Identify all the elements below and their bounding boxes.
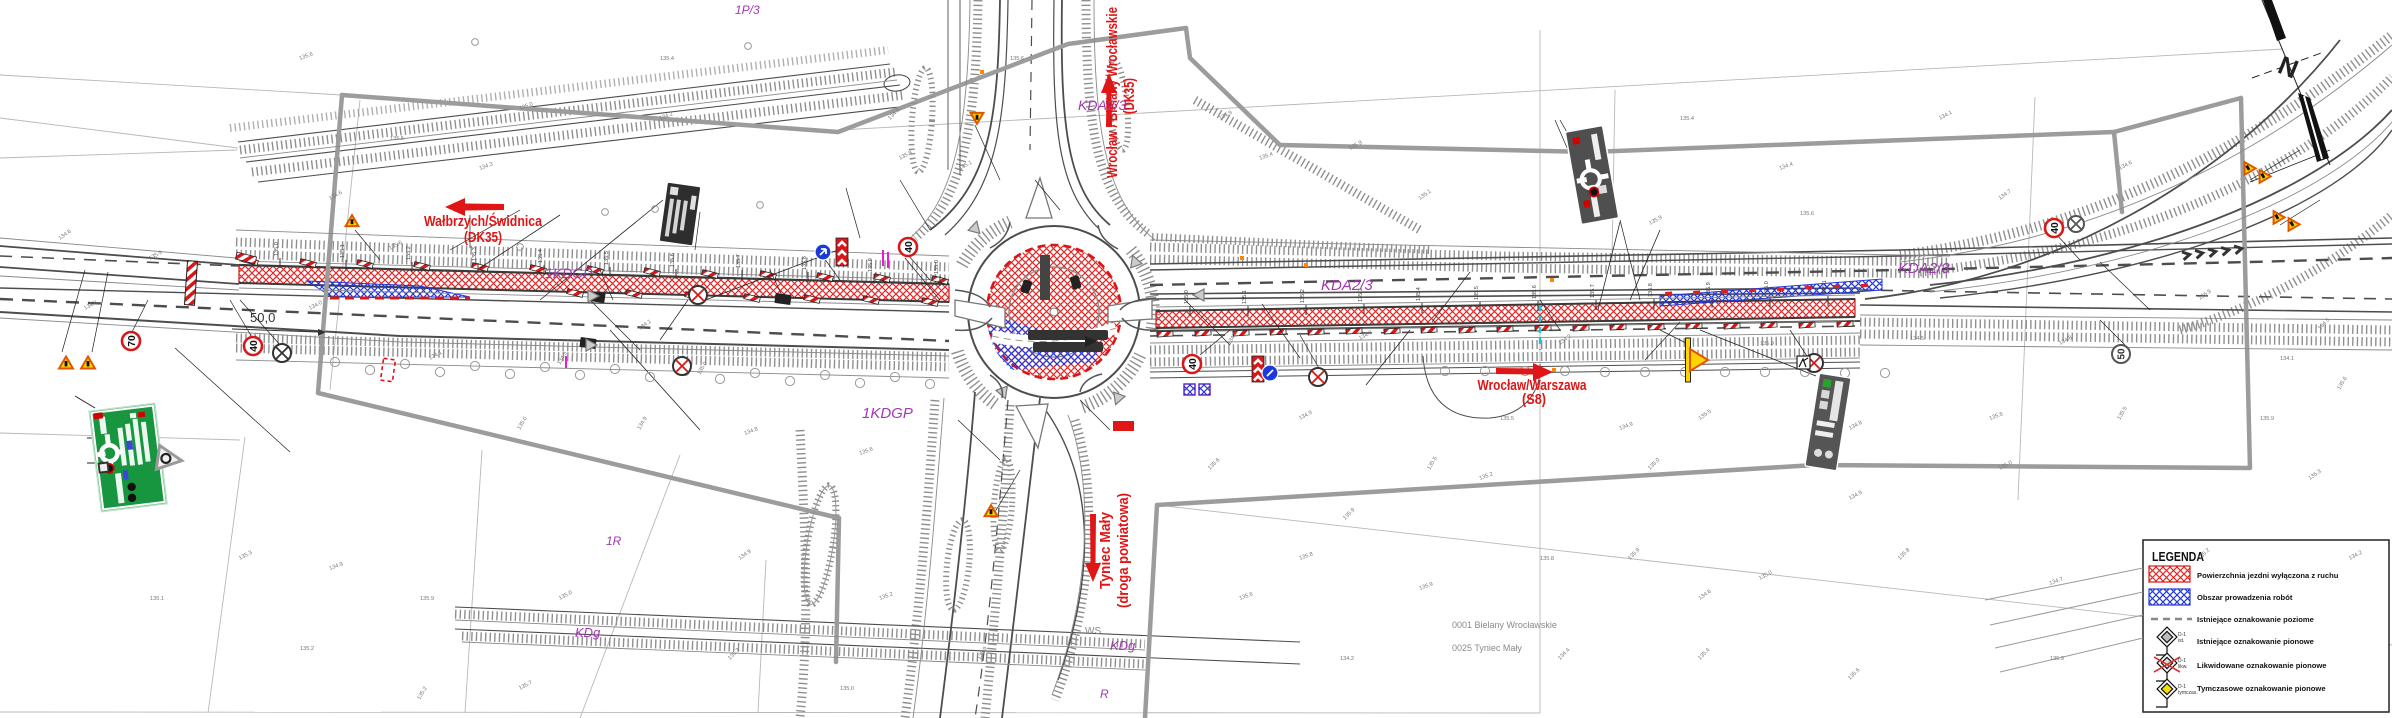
svg-text:KDA2/3: KDA2/3 (1321, 277, 1373, 294)
svg-text:tymczas.: tymczas. (2178, 690, 2198, 696)
svg-text:135.9: 135.9 (420, 596, 434, 602)
svg-text:134.1: 134.1 (2280, 356, 2294, 362)
svg-text:(DK35): (DK35) (464, 229, 502, 246)
svg-text:135.9: 135.9 (1706, 282, 1712, 296)
svg-text:135.9: 135.9 (2260, 416, 2274, 422)
svg-text:1KDGP: 1KDGP (545, 265, 593, 281)
svg-text:135.1: 135.1 (1242, 290, 1248, 304)
svg-text:KDg: KDg (1110, 638, 1136, 653)
svg-text:Tyniec Mały: Tyniec Mały (1097, 511, 1114, 589)
svg-text:135.9: 135.9 (2050, 656, 2064, 662)
svg-text:135.2: 135.2 (1300, 289, 1306, 303)
svg-text:Powierzchnia jezdni wyłączona: Powierzchnia jezdni wyłączona z ruchu (2197, 571, 2339, 580)
svg-text:135.8: 135.8 (802, 256, 808, 270)
svg-text:135.0: 135.0 (274, 242, 280, 256)
svg-text:Likwidowane oznakowanie pionow: Likwidowane oznakowanie pionowe (2197, 661, 2327, 670)
svg-text:135.6: 135.6 (1800, 211, 1814, 217)
svg-text:135.4: 135.4 (660, 56, 674, 62)
svg-text:likw.: likw. (2178, 664, 2187, 670)
svg-text:1KDGP: 1KDGP (862, 405, 913, 422)
svg-text:70: 70 (127, 335, 138, 347)
svg-text:135.5: 135.5 (390, 136, 404, 142)
svg-text:135.9: 135.9 (1760, 341, 1774, 347)
svg-text:135.5: 135.5 (1474, 286, 1480, 300)
svg-text:135.1: 135.1 (340, 244, 346, 258)
svg-text:Obszar prowadzenia robót: Obszar prowadzenia robót (2197, 593, 2293, 602)
svg-text:135.2: 135.2 (300, 646, 314, 652)
svg-text:KDA2/3: KDA2/3 (1898, 260, 1950, 277)
svg-text:135.0: 135.0 (934, 260, 940, 274)
svg-text:40: 40 (904, 241, 915, 253)
svg-text:40: 40 (249, 340, 260, 352)
svg-text:135.4: 135.4 (1680, 116, 1694, 122)
svg-text:1P/3: 1P/3 (735, 3, 760, 17)
svg-text:134.5: 134.5 (1910, 336, 1924, 342)
svg-text:135.6: 135.6 (1010, 56, 1024, 62)
svg-text:135.5: 135.5 (604, 251, 610, 265)
svg-text:135.3: 135.3 (472, 247, 478, 261)
svg-text:135.7: 135.7 (736, 254, 742, 268)
svg-text:135.2: 135.2 (406, 246, 412, 260)
svg-text:ist.: ist. (2178, 638, 2184, 644)
svg-text:135.8: 135.8 (1540, 556, 1554, 562)
svg-text:50,0: 50,0 (250, 310, 275, 325)
svg-text:134.2: 134.2 (1340, 656, 1354, 662)
svg-text:40: 40 (2050, 222, 2061, 234)
svg-text:0001 Bielany Wrocławskie: 0001 Bielany Wrocławskie (1452, 620, 1557, 630)
svg-text:135.4: 135.4 (1416, 287, 1422, 301)
svg-text:135.6: 135.6 (1532, 285, 1538, 299)
svg-text:135.8: 135.8 (1648, 283, 1654, 297)
svg-text:Wałbrzych/Świdnica: Wałbrzych/Świdnica (424, 212, 543, 230)
svg-text:Istniejące oznakowanie poziome: Istniejące oznakowanie poziome (2197, 615, 2314, 624)
svg-text:135.5: 135.5 (1500, 416, 1514, 422)
svg-text:(droga powiatowa): (droga powiatowa) (1115, 493, 1132, 608)
svg-text:Istniejące oznakowanie pionowe: Istniejące oznakowanie pionowe (2197, 637, 2314, 646)
svg-text:KDg: KDg (575, 625, 601, 640)
svg-text:Tymczasowe oznakowanie pionowe: Tymczasowe oznakowanie pionowe (2197, 684, 2326, 693)
svg-text:135.9: 135.9 (868, 258, 874, 272)
svg-text:50: 50 (2117, 348, 2128, 360)
svg-text:1R: 1R (606, 534, 622, 548)
svg-text:R: R (1100, 687, 1109, 701)
svg-text:135.0: 135.0 (840, 686, 854, 692)
svg-text:135.7: 135.7 (1590, 284, 1596, 298)
svg-text:135.4: 135.4 (538, 249, 544, 263)
svg-text:135.0: 135.0 (1764, 281, 1770, 295)
svg-text:135.6: 135.6 (670, 253, 676, 267)
svg-text:135.1: 135.1 (1822, 280, 1828, 294)
svg-text:WS: WS (1085, 626, 1101, 637)
svg-text:0025 Tyniec Mały: 0025 Tyniec Mały (1452, 643, 1522, 653)
svg-text:135.1: 135.1 (150, 596, 164, 602)
svg-text:40: 40 (1188, 358, 1199, 370)
svg-text:KDA2/3: KDA2/3 (1078, 97, 1126, 113)
svg-text:(S8): (S8) (1522, 391, 1546, 408)
